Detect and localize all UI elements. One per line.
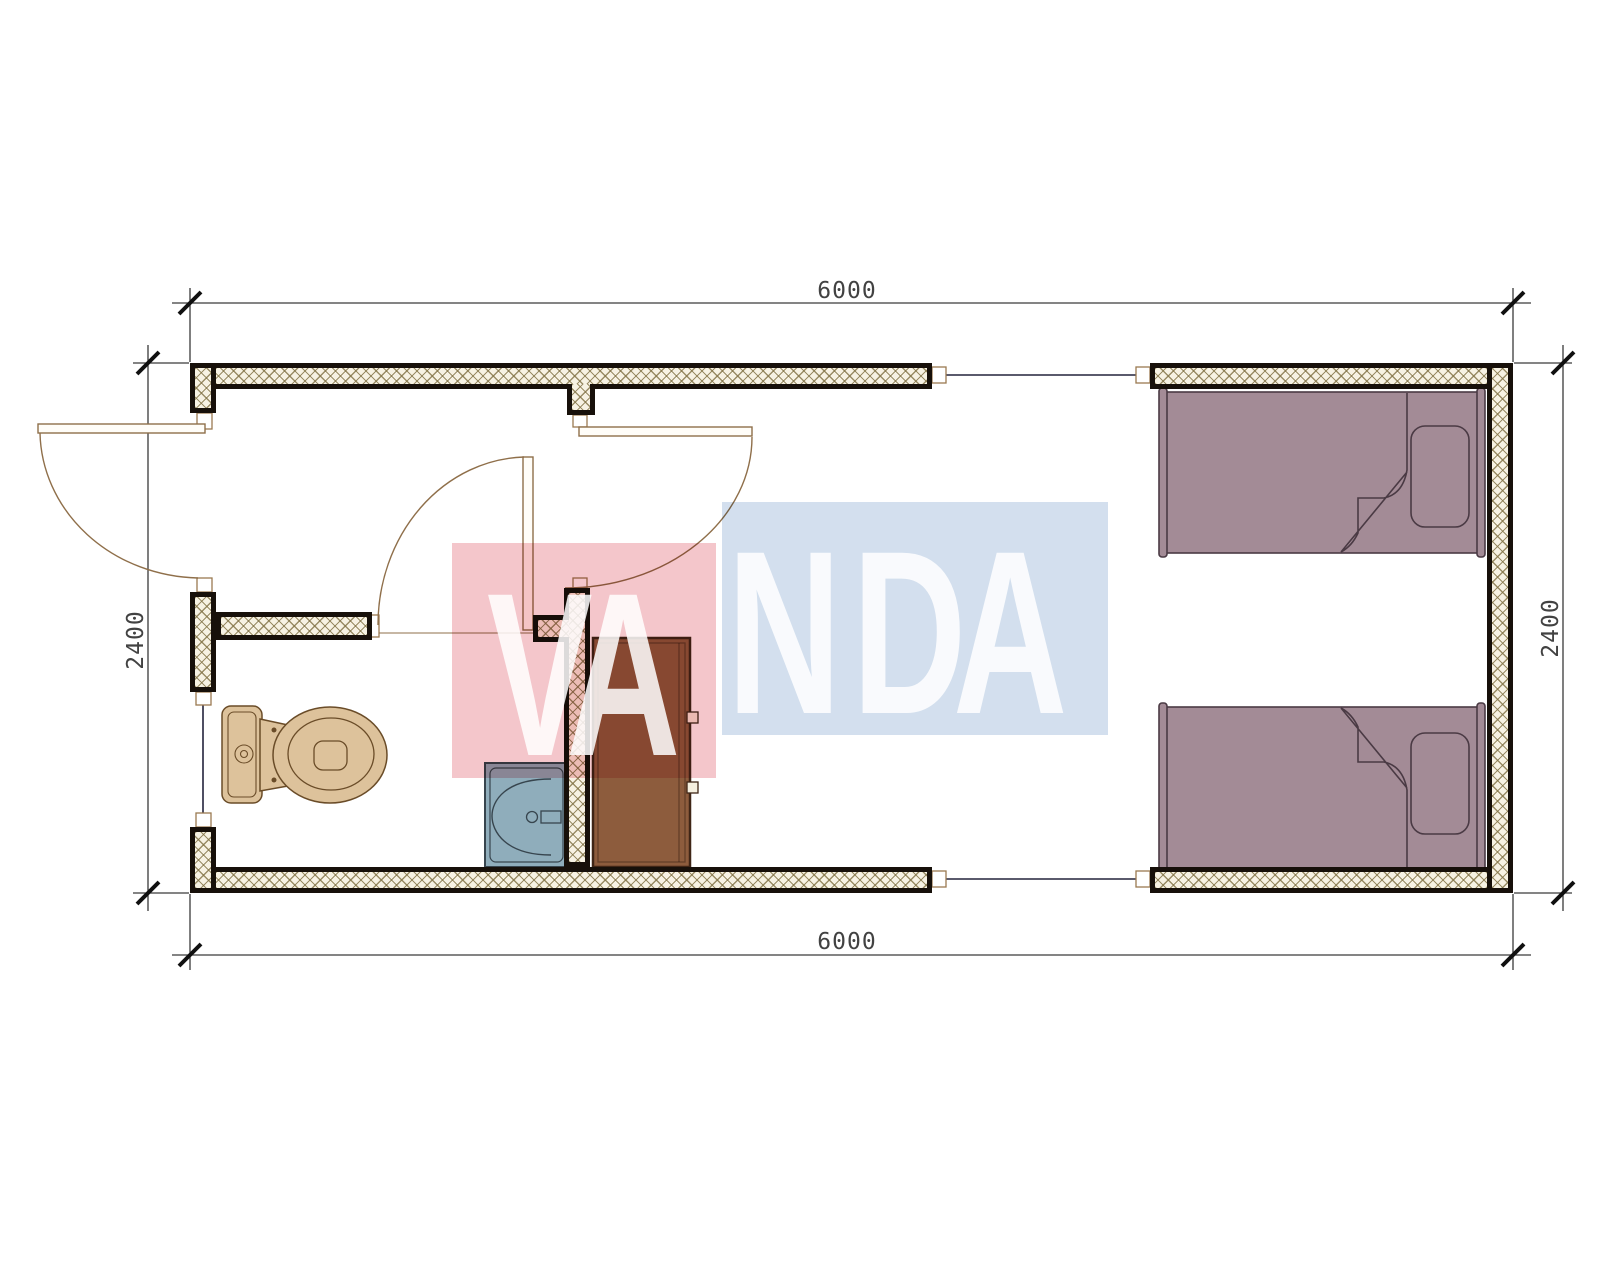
wall-bottom-left [190,867,932,893]
room-door-leaf [579,427,752,436]
bed-top [1159,388,1485,557]
dimension-label-bottom: 6000 [817,929,876,955]
entry-door-swing-arc [40,433,198,578]
wall-bathroom-north [216,612,372,640]
bed-end-bar [1159,703,1167,872]
dimension-label-top: 6000 [817,278,876,304]
wall-bottom-right [1150,867,1513,893]
watermark-letter: N [727,517,841,750]
watermark-letter: A [953,517,1067,750]
floor-plan-canvas: V A N D A 6000 6000 2400 2400 [0,0,1600,1280]
wall-left-middle [190,592,216,692]
entry-door-leaf [38,424,205,433]
wall-left-lower [190,827,216,893]
wall-top-right [1150,363,1513,389]
bed-end-bar [1477,388,1485,557]
wardrobe-handle [687,782,698,793]
watermark-letter: D [852,517,966,750]
watermark-letter: A [566,559,680,792]
toilet [222,706,387,803]
bed-bottom [1159,703,1485,872]
bed-end-bar [1159,388,1167,557]
bed-pillow [1411,733,1469,834]
bed-end-bar [1477,703,1485,872]
bed-pillow [1411,426,1469,527]
toilet-bowl [273,707,387,803]
wall-doorway-stub-top [567,384,595,415]
wall-left-upper [190,363,216,413]
sink-faucet [541,811,561,823]
wall-right [1487,363,1513,893]
dimension-label-left: 2400 [123,610,149,669]
dimension-label-right: 2400 [1538,598,1564,657]
wall-top-left [190,363,932,389]
